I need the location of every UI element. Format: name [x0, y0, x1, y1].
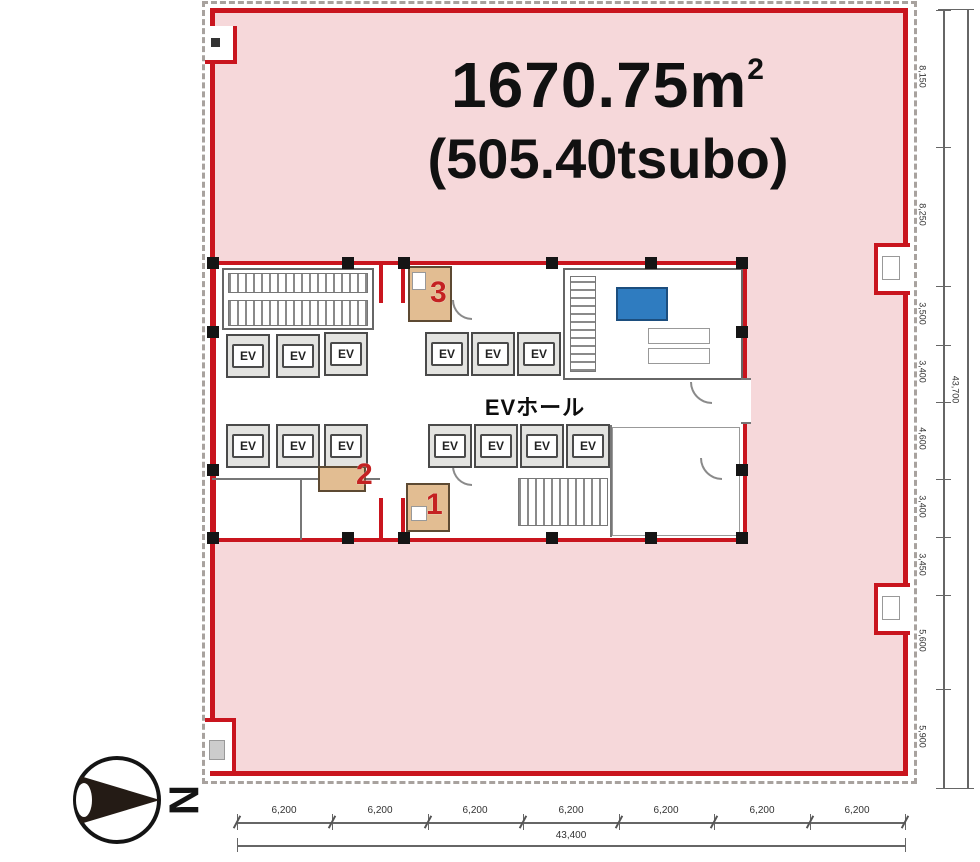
marker-1-detail [411, 506, 427, 521]
marker-3-label: 3 [430, 278, 447, 308]
column [207, 257, 219, 269]
column [207, 326, 219, 338]
elevator-shaft: EV [428, 424, 472, 468]
north-label: N [161, 785, 208, 815]
marker-2-label: 2 [356, 460, 373, 490]
bottom-dim-segment: 6,200 [825, 806, 889, 816]
north-compass: N [62, 750, 232, 855]
dim-tick [936, 345, 951, 346]
column [207, 532, 219, 544]
bottom-dim-segment: 6,200 [443, 806, 507, 816]
right-dim-segment: 4,600 [918, 409, 927, 469]
highlighted-room-blue [616, 287, 668, 321]
dim-tick [936, 10, 951, 11]
right-dim-segment: 5,600 [918, 611, 927, 671]
column [546, 532, 558, 544]
elevator-shaft: EV [425, 332, 469, 376]
right-dim-segment: 3,400 [918, 477, 927, 537]
right-dim-segment: 8,250 [918, 185, 927, 245]
dim-tick [936, 147, 951, 148]
toilet-fixtures [570, 276, 596, 372]
ev-label: EV [431, 342, 463, 366]
elevator-shaft: EV [276, 424, 320, 468]
floorplan-stage: 1670.75m2 (505.40tsubo) EV EV EV EV EV E… [0, 0, 980, 862]
right-dim-segment: 3,450 [918, 535, 927, 595]
right-dim-total-line [967, 10, 969, 788]
ev-label: EV [480, 434, 512, 458]
elevator-shaft: EV [226, 334, 270, 378]
elevator-shaft: EV [517, 332, 561, 376]
stairs-hatch-a [228, 273, 368, 293]
area-value: 1670.75m [451, 49, 747, 121]
demise-line [379, 261, 383, 303]
column [207, 464, 219, 476]
notch-right-upper-detail [882, 256, 900, 280]
marker-1-label: 1 [426, 490, 443, 520]
dim-tick [936, 286, 951, 287]
ev-label: EV [330, 342, 362, 366]
elevator-shaft: EV [324, 332, 368, 376]
column [398, 532, 410, 544]
dim-tick [936, 479, 951, 480]
ev-hall-label: EVホール [455, 390, 615, 422]
stairs-hatch-b [228, 300, 368, 326]
ev-label: EV [572, 434, 604, 458]
dim-tick [905, 838, 906, 852]
stairs-hatch-bottom [518, 478, 608, 526]
bottom-dim-segment: 6,200 [348, 806, 412, 816]
column [736, 257, 748, 269]
column [398, 257, 410, 269]
column [342, 257, 354, 269]
area-superscript: 2 [747, 53, 765, 86]
column [342, 532, 354, 544]
bottom-dim-total: 43,400 [539, 831, 603, 841]
ev-label: EV [282, 434, 314, 458]
notch-top-left [205, 26, 237, 64]
bottom-dim-segment: 6,200 [634, 806, 698, 816]
right-dim-line [943, 10, 945, 788]
dim-tick [936, 402, 951, 403]
ev-label: EV [232, 344, 264, 368]
dim-tick [936, 537, 951, 538]
area-size-label: 1670.75m2 [348, 48, 868, 122]
corridor-opening [741, 378, 751, 424]
partition-wall [300, 478, 302, 540]
right-dim-segment: 3,500 [918, 284, 927, 344]
area-tsubo-label: (505.40tsubo) [348, 126, 868, 191]
compass-tail [76, 783, 92, 817]
elevator-shaft: EV [471, 332, 515, 376]
ev-label: EV [477, 342, 509, 366]
bottom-dim-segment: 6,200 [539, 806, 603, 816]
bottom-dim-segment: 6,200 [730, 806, 794, 816]
right-dim-total: 43,700 [951, 360, 960, 420]
right-dim-segment: 8,150 [918, 47, 927, 107]
bottom-dim-line [237, 822, 905, 824]
ev-label: EV [232, 434, 264, 458]
partition-wall [610, 425, 612, 537]
elevator-shaft: EV [276, 334, 320, 378]
notch-right-lower-detail [882, 596, 900, 620]
ev-label: EV [282, 344, 314, 368]
dim-tick [938, 788, 974, 789]
column [546, 257, 558, 269]
opening-jamb [741, 378, 751, 380]
elevator-shaft: EV [566, 424, 610, 468]
toilet-counter-a [648, 328, 710, 344]
toilet-counter-b [648, 348, 710, 364]
ev-label: EV [526, 434, 558, 458]
column [645, 532, 657, 544]
ev-label: EV [434, 434, 466, 458]
bottom-dim-total-line [237, 845, 905, 847]
opening-jamb [741, 422, 751, 424]
room-bottom-right [612, 427, 740, 536]
dim-tick [936, 689, 951, 690]
marker-3-detail [412, 272, 426, 290]
ev-label: EV [523, 342, 555, 366]
right-dim-segment: 5,900 [918, 707, 927, 767]
dim-tick [938, 9, 974, 10]
right-dim-segment: 3,400 [918, 342, 927, 402]
dim-tick [936, 595, 951, 596]
demise-line [379, 498, 383, 542]
elevator-shaft: EV [520, 424, 564, 468]
column [736, 326, 748, 338]
ev-label: EV [330, 434, 362, 458]
column [736, 532, 748, 544]
bottom-dim-segment: 6,200 [252, 806, 316, 816]
column [736, 464, 748, 476]
notch-top-left-detail [211, 38, 220, 47]
elevator-shaft: EV [226, 424, 270, 468]
column [645, 257, 657, 269]
elevator-shaft: EV [474, 424, 518, 468]
dim-tick [237, 838, 238, 852]
